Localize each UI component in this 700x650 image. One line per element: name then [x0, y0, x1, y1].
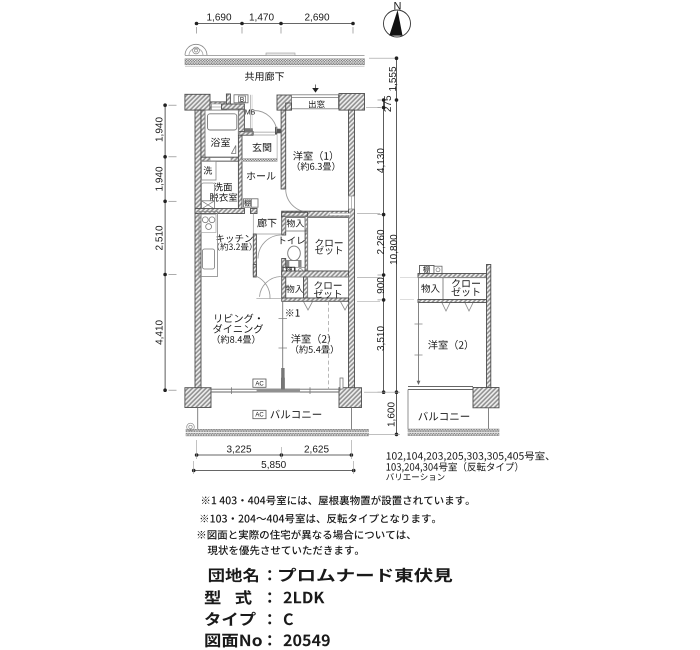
- svg-text:1,940: 1,940: [154, 166, 165, 191]
- svg-text:AC: AC: [255, 381, 264, 387]
- svg-text:10,800: 10,800: [389, 234, 400, 265]
- svg-text:275: 275: [383, 95, 394, 112]
- svg-text:4,130: 4,130: [376, 148, 387, 173]
- svg-text:1,470: 1,470: [249, 13, 274, 24]
- svg-text:B: B: [240, 96, 244, 103]
- svg-text:3,510: 3,510: [376, 326, 387, 351]
- svg-text:2,690: 2,690: [304, 13, 329, 24]
- svg-text:1,940: 1,940: [154, 117, 165, 142]
- svg-text:1,600: 1,600: [387, 402, 398, 427]
- svg-text:N: N: [394, 0, 402, 12]
- svg-text:2,625: 2,625: [304, 445, 329, 456]
- svg-text:2,260: 2,260: [376, 229, 387, 254]
- svg-text:1,690: 1,690: [206, 13, 231, 24]
- svg-text:1,555: 1,555: [388, 66, 399, 91]
- svg-text:900: 900: [376, 277, 387, 294]
- svg-text:AC: AC: [255, 413, 264, 419]
- svg-text:5,850: 5,850: [261, 460, 286, 471]
- svg-text:3,225: 3,225: [226, 445, 251, 456]
- svg-text:4,410: 4,410: [154, 319, 165, 344]
- svg-text:2,510: 2,510: [154, 225, 165, 250]
